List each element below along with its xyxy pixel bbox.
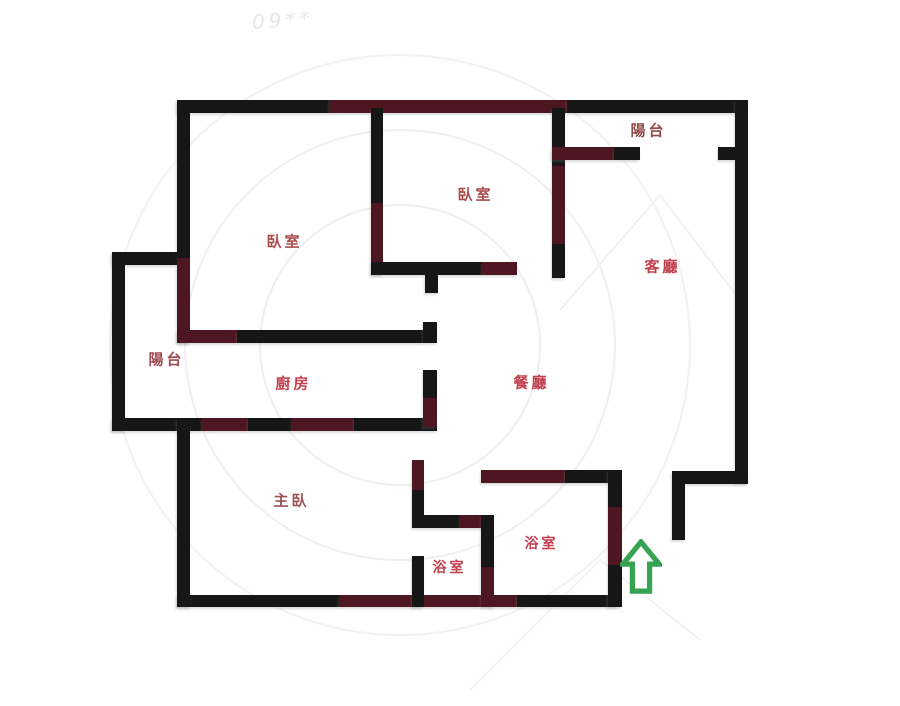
wall-segment (481, 567, 494, 607)
wall-segment (412, 556, 424, 607)
wall-segment (614, 147, 640, 160)
wall-segment (237, 330, 423, 343)
wall-segment (481, 515, 494, 567)
wall-segment (481, 470, 565, 483)
room-label: 陽台 (145, 349, 184, 370)
room-label: 餐廳 (510, 372, 549, 393)
wall-segment (567, 100, 748, 113)
wall-segment (423, 398, 437, 427)
wall-segment (329, 100, 567, 113)
wall-segment (423, 322, 437, 343)
room-label: 客廳 (641, 256, 680, 277)
room-label: 臥室 (263, 231, 302, 252)
entrance-arrow-icon (620, 539, 662, 595)
wall-segment (177, 595, 339, 607)
room-label: 浴室 (430, 557, 467, 577)
floorplan-canvas: 09** 陽台臥室臥室客廳陽台廚房餐廳主臥浴室浴室 (0, 0, 900, 706)
wall-segment (672, 484, 685, 540)
wall-segment (718, 147, 735, 160)
wall-segment (177, 100, 329, 113)
room-label: 陽台 (627, 120, 666, 141)
wall-segment (412, 460, 424, 490)
room-label: 廚房 (272, 373, 311, 394)
watermark-text: 09** (251, 6, 314, 34)
wall-segment (552, 244, 565, 278)
wall-segment (112, 252, 125, 431)
wall-segment (177, 100, 190, 258)
wall-segment (552, 166, 565, 244)
room-label: 浴室 (522, 533, 559, 553)
wall-segment (177, 330, 237, 343)
room-label: 臥室 (454, 184, 493, 205)
wall-segment (292, 418, 354, 431)
wall-segment (425, 275, 438, 293)
wall-segment (202, 418, 248, 431)
wall-segment (735, 100, 748, 483)
wall-segment (248, 418, 292, 431)
wall-segment (423, 370, 437, 398)
wall-segment (672, 471, 748, 484)
wall-segment (412, 515, 460, 528)
wall-segment (371, 108, 383, 203)
wall-segment (371, 262, 482, 275)
wall-segment (412, 490, 424, 515)
wall-segment (177, 418, 190, 607)
wall-segment (608, 470, 622, 507)
room-label: 主臥 (270, 490, 309, 511)
wall-segment (552, 147, 614, 160)
wall-segment (482, 262, 517, 275)
wall-segment (517, 595, 617, 607)
